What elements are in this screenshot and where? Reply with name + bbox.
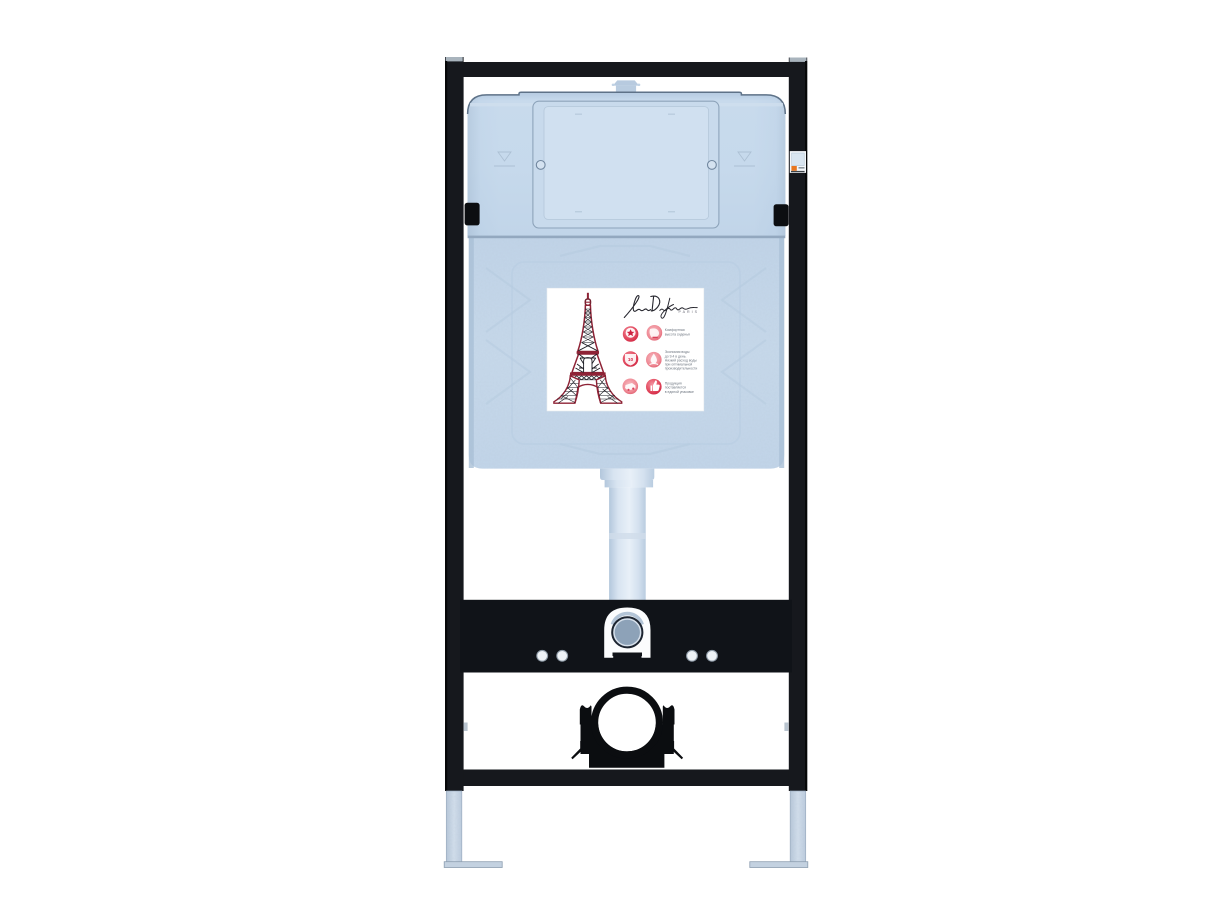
svg-text:в единой упаковке: в единой упаковке [665, 390, 694, 394]
svg-text:производительности: производительности [665, 367, 698, 371]
svg-text:10: 10 [628, 357, 634, 362]
svg-text:PARIS: PARIS [679, 310, 700, 314]
svg-text:высота сиденья: высота сиденья [665, 332, 690, 336]
